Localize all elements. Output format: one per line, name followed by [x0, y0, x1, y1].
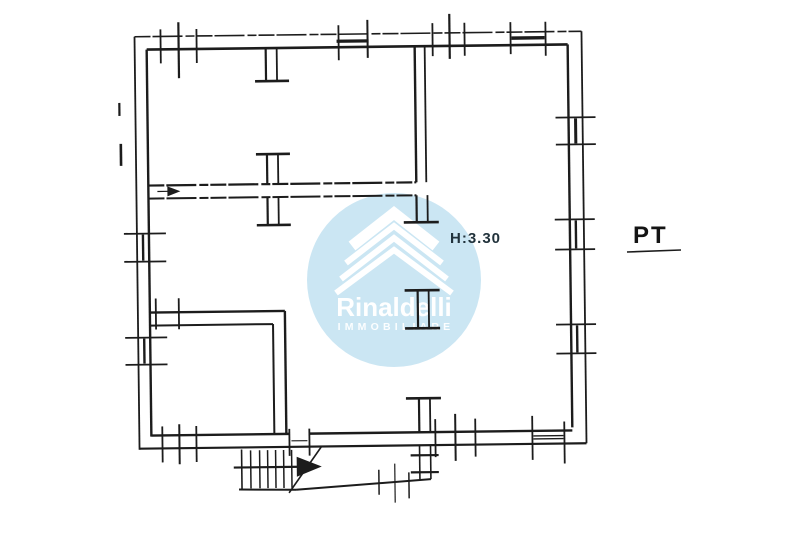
floor-level-label: PT: [633, 222, 668, 250]
ceiling-height-annotation: H:3.30: [450, 230, 501, 247]
scanned-floor-plan-page: Rinaldelli IMMOBILIARE H:3.30 PT: [0, 0, 792, 558]
floor-label-underline: [627, 250, 681, 252]
watermark: Rinaldelli IMMOBILIARE: [307, 193, 481, 367]
watermark-brand-text: Rinaldelli: [336, 292, 452, 322]
floor-plan-drawing: Rinaldelli IMMOBILIARE: [0, 0, 792, 558]
